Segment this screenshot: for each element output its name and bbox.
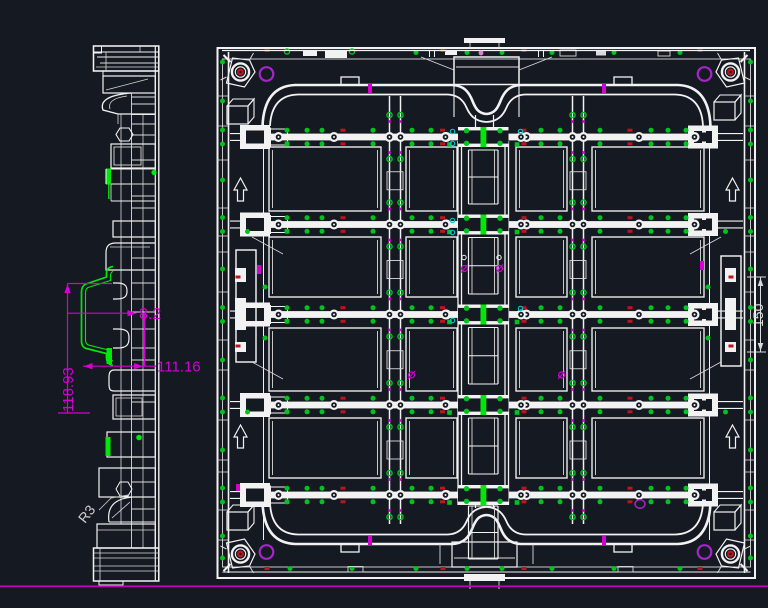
svg-text:118.93: 118.93 (60, 367, 77, 412)
svg-text:150: 150 (750, 303, 766, 327)
svg-text:111.16: 111.16 (157, 359, 201, 376)
svg-text:8.2: 8.2 (139, 306, 161, 323)
